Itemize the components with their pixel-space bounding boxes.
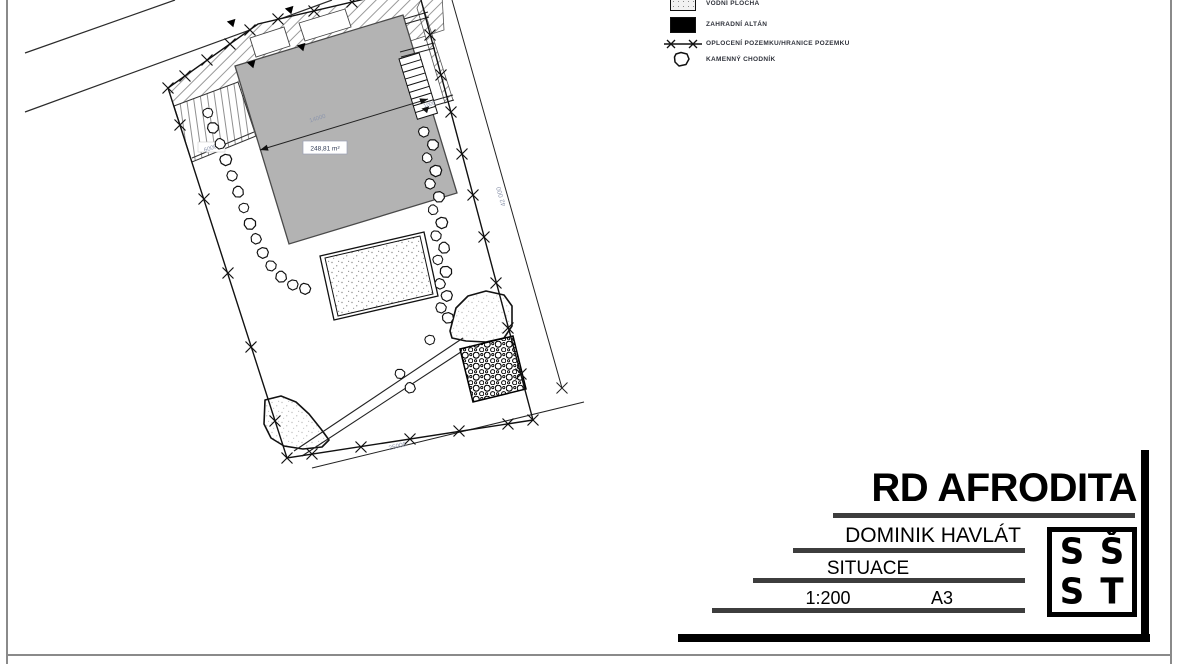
- fence-symbol: [663, 38, 703, 50]
- legend-label-water: VODNÍ PLOCHA: [706, 0, 759, 7]
- title-underline: [833, 513, 1135, 518]
- legend-label-stone: KAMENNÝ CHODNÍK: [706, 56, 776, 63]
- legend-label-fence: OPLOCENÍ POZEMKU/HRANICE POZEMKU: [706, 40, 850, 47]
- pool: [320, 232, 438, 320]
- logo-letter: S: [1052, 571, 1092, 613]
- svg-text:248,81 m²: 248,81 m²: [310, 146, 340, 153]
- page-border-right: [1170, 0, 1172, 664]
- school-logo: S Š S T: [1047, 527, 1137, 617]
- titleblock-frame-horizontal: [678, 634, 1150, 642]
- water-area-swatch: [670, 0, 696, 11]
- titleblock-frame-vertical: [1141, 450, 1149, 642]
- paper-format: A3: [912, 588, 972, 609]
- drawing-sheet: 6000 1000: [0, 0, 1180, 664]
- drawing-name: SITUACE: [768, 558, 968, 580]
- drawing-scale: 1:200: [788, 588, 868, 609]
- building-area-label: 248,81 m²: [303, 141, 347, 154]
- logo-letter: T: [1092, 571, 1132, 613]
- scale-underline: [712, 608, 1025, 613]
- rock-mound-upper: [450, 291, 512, 342]
- page-border-bottom: [6, 654, 1172, 656]
- gazebo-swatch: [670, 17, 696, 33]
- site-plan: 6000 1000: [0, 0, 620, 480]
- author-underline: [793, 548, 1025, 553]
- drawing-underline: [753, 578, 1025, 583]
- project-title: RD AFRODITA: [680, 466, 1137, 511]
- stone-symbol: [672, 51, 692, 68]
- page-border-left: [6, 0, 8, 664]
- legend-label-gazebo: ZAHRADNÍ ALTÁN: [706, 21, 767, 28]
- logo-letter: S: [1052, 531, 1092, 573]
- author-name: DOMINIK HAVLÁT: [833, 524, 1033, 548]
- logo-letter: Š: [1092, 531, 1132, 573]
